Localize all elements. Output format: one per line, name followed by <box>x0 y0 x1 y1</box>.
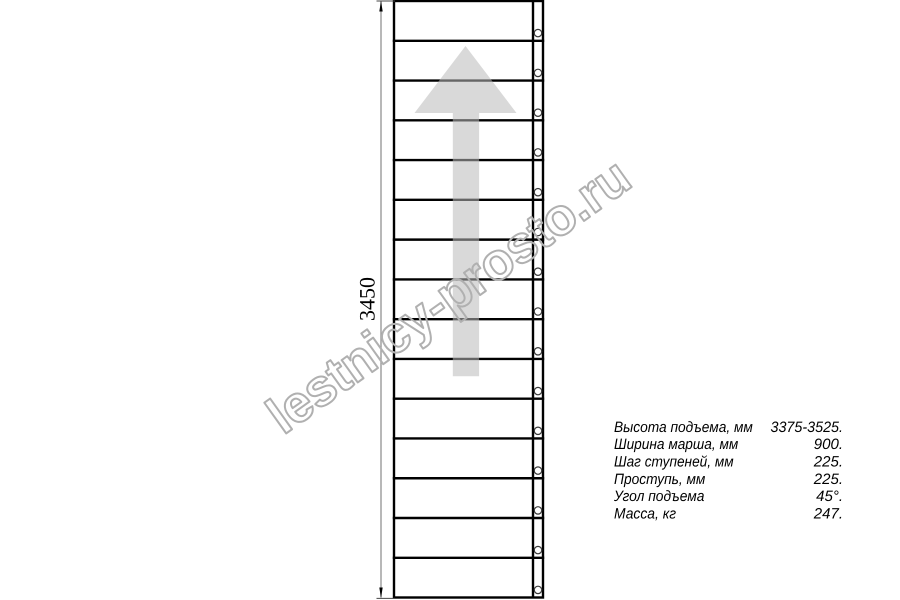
svg-text:225.: 225. <box>813 453 843 470</box>
svg-text:Ширина марша, мм: Ширина марша, мм <box>614 436 738 453</box>
svg-text:Шаг ступеней, мм: Шаг ступеней, мм <box>614 453 734 470</box>
svg-text:247.: 247. <box>813 505 843 522</box>
svg-text:Масса, кг: Масса, кг <box>614 505 677 522</box>
svg-text:Проступь, мм: Проступь, мм <box>614 471 705 488</box>
svg-text:3375-3525.: 3375-3525. <box>771 419 844 436</box>
svg-text:900.: 900. <box>814 436 843 453</box>
svg-text:45°.: 45°. <box>816 488 843 505</box>
svg-text:225.: 225. <box>813 471 843 488</box>
svg-text:Угол подъема: Угол подъема <box>613 488 704 505</box>
svg-text:Высота подъема, мм: Высота подъема, мм <box>614 419 753 436</box>
